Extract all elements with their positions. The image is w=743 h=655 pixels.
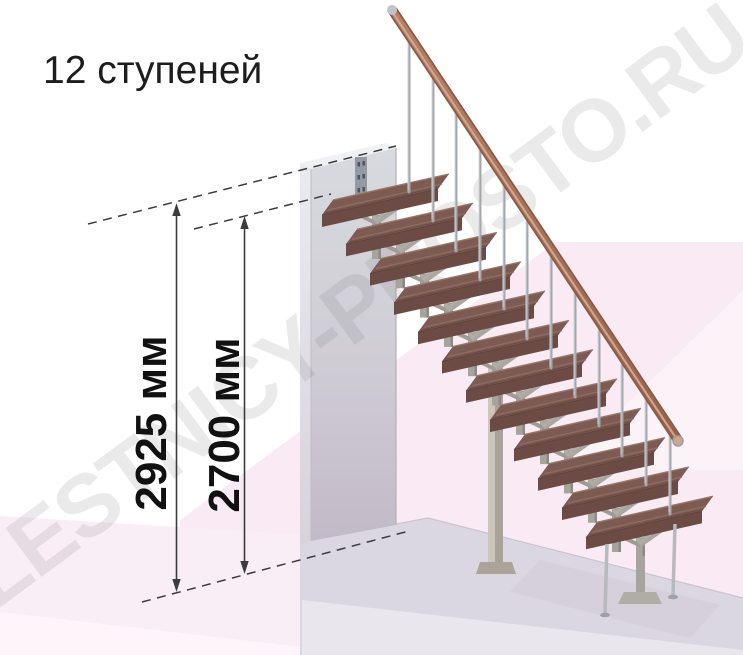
- staircase-dimension-diagram: LESTNICY-PROSTO.RU 2925 мм 2700 мм: [0, 0, 743, 655]
- page-title: 12 ступеней: [43, 49, 262, 92]
- baluster: [455, 105, 456, 251]
- baluster: [408, 34, 409, 192]
- baluster: [479, 141, 480, 280]
- handrail-top-cap: [387, 5, 397, 15]
- diagram-canvas: LESTNICY-PROSTO.RU 2925 мм 2700 мм: [0, 0, 743, 655]
- baluster: [574, 285, 575, 397]
- baluster: [550, 249, 551, 368]
- mounting-bracket: [355, 157, 367, 198]
- dimension-label-floor-to-top-tread: 2700 мм: [200, 337, 249, 512]
- baluster: [645, 394, 646, 485]
- handrail-end-cap: [673, 436, 683, 446]
- baluster: [432, 70, 433, 221]
- baluster: [669, 430, 670, 514]
- baluster: [526, 213, 527, 339]
- baluster: [503, 177, 504, 309]
- baluster: [621, 358, 622, 456]
- baluster: [598, 322, 599, 426]
- dimension-label-total-height: 2925 мм: [127, 335, 176, 510]
